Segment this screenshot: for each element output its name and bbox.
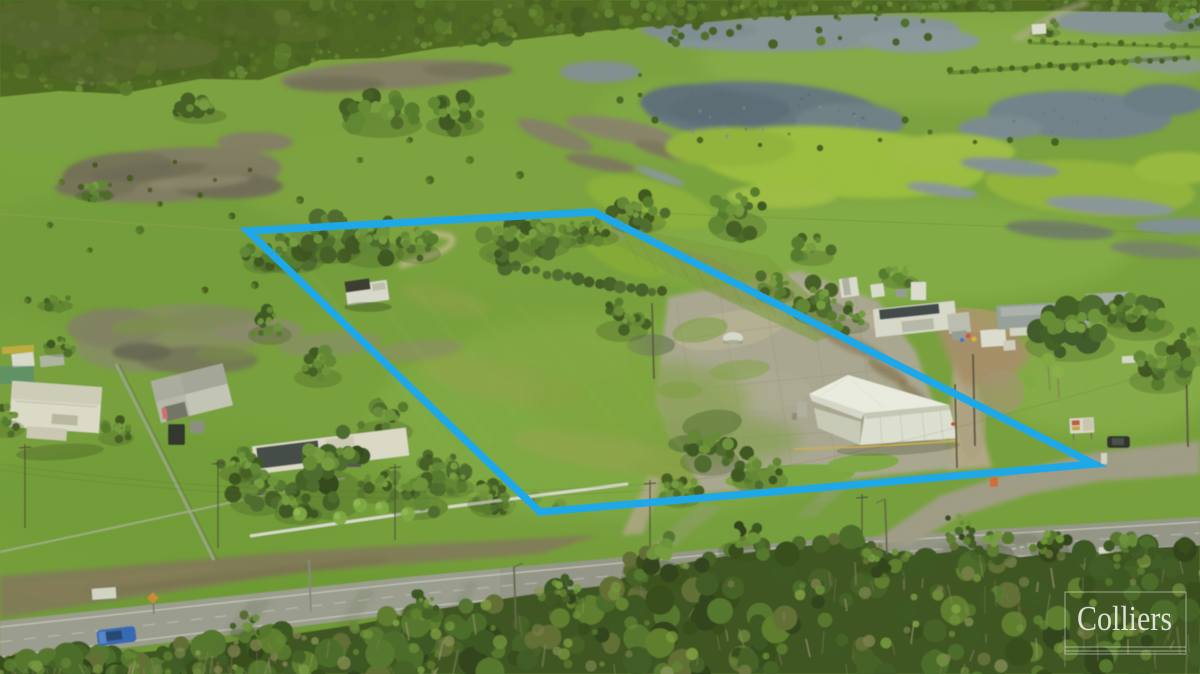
svg-text:Colliers: Colliers [1077, 599, 1172, 638]
